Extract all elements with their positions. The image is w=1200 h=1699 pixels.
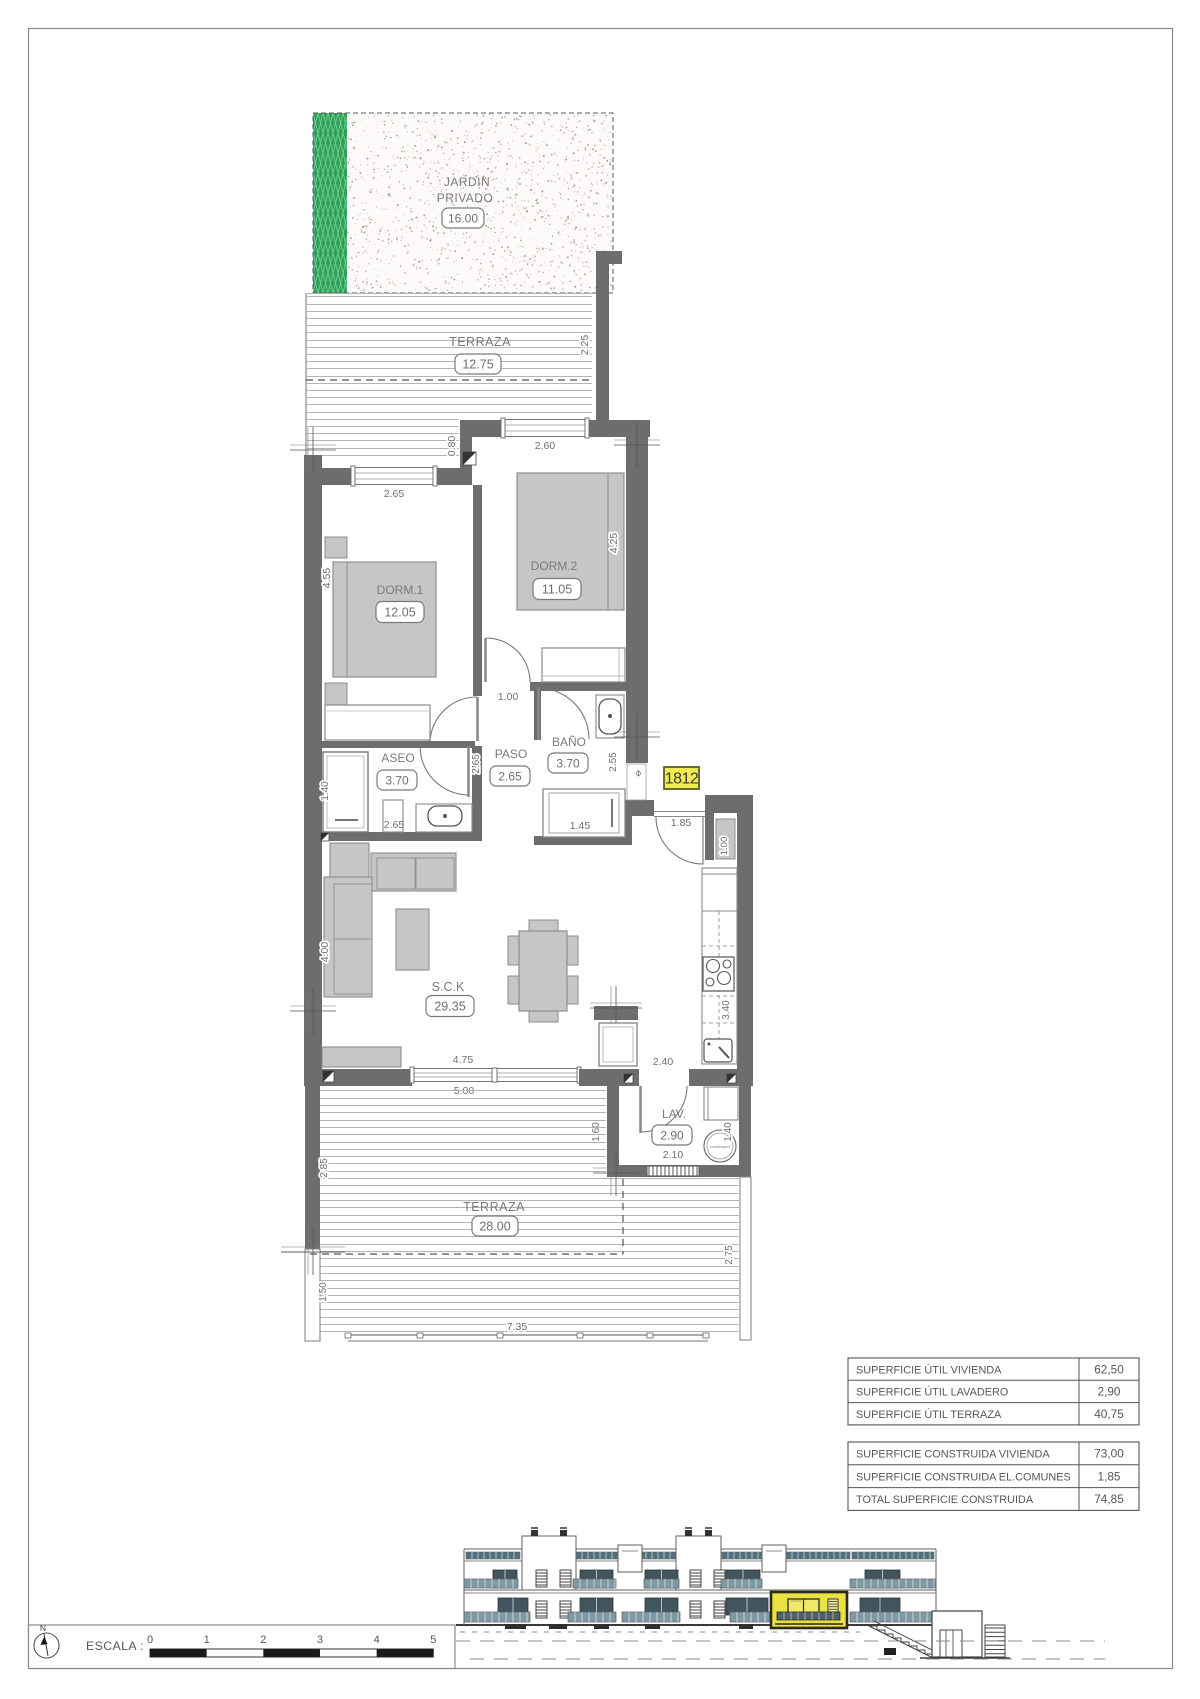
svg-text:TERRAZA: TERRAZA bbox=[449, 335, 511, 349]
svg-text:2.65: 2.65 bbox=[384, 488, 405, 500]
svg-text:2.65: 2.65 bbox=[384, 819, 405, 831]
svg-text:12.75: 12.75 bbox=[462, 358, 493, 372]
svg-text:29.35: 29.35 bbox=[434, 1000, 465, 1014]
svg-text:TOTAL SUPERFICIE CONSTRUIDA: TOTAL SUPERFICIE CONSTRUIDA bbox=[856, 1494, 1034, 1506]
svg-text:4: 4 bbox=[374, 1634, 380, 1646]
svg-text:LAV.: LAV. bbox=[662, 1107, 686, 1121]
svg-text:JARDIN: JARDIN bbox=[444, 175, 490, 189]
svg-text:S.C.K: S.C.K bbox=[432, 980, 465, 994]
svg-text:1.40: 1.40 bbox=[723, 1122, 734, 1142]
svg-text:74,85: 74,85 bbox=[1094, 1492, 1124, 1506]
svg-text:ESCALA :: ESCALA : bbox=[86, 1639, 144, 1653]
svg-text:2.40: 2.40 bbox=[653, 1056, 674, 1068]
svg-text:3.70: 3.70 bbox=[385, 773, 409, 787]
svg-text:73,00: 73,00 bbox=[1094, 1447, 1124, 1461]
svg-text:40,75: 40,75 bbox=[1094, 1407, 1124, 1421]
svg-text:62,50: 62,50 bbox=[1094, 1362, 1124, 1376]
svg-text:2.55: 2.55 bbox=[608, 752, 619, 772]
svg-text:SUPERFICIE CONSTRUIDA EL.COMUN: SUPERFICIE CONSTRUIDA EL.COMUNES bbox=[856, 1471, 1071, 1483]
svg-text:BAÑO: BAÑO bbox=[552, 735, 586, 749]
svg-text:2.65: 2.65 bbox=[471, 754, 482, 774]
svg-text:1.45: 1.45 bbox=[570, 820, 591, 832]
svg-text:SUPERFICIE ÚTIL LAVADERO: SUPERFICIE ÚTIL LAVADERO bbox=[856, 1386, 1008, 1399]
svg-text:3: 3 bbox=[317, 1634, 323, 1646]
svg-text:SUPERFICIE ÚTIL TERRAZA: SUPERFICIE ÚTIL TERRAZA bbox=[856, 1408, 1002, 1421]
svg-text:ASEO: ASEO bbox=[381, 751, 414, 765]
svg-text:4.00: 4.00 bbox=[319, 942, 331, 963]
svg-text:4.55: 4.55 bbox=[321, 568, 333, 589]
svg-text:0.80: 0.80 bbox=[446, 436, 458, 457]
svg-text:2.60: 2.60 bbox=[535, 440, 556, 452]
svg-text:condensador: condensador bbox=[710, 1145, 731, 1149]
svg-text:5: 5 bbox=[430, 1634, 436, 1646]
svg-text:1,85: 1,85 bbox=[1098, 1469, 1121, 1483]
svg-text:2,90: 2,90 bbox=[1098, 1385, 1121, 1399]
svg-text:3.70: 3.70 bbox=[556, 756, 580, 770]
svg-text:0: 0 bbox=[147, 1634, 153, 1646]
svg-text:PRIVADO: PRIVADO bbox=[437, 191, 494, 205]
svg-text:1.00: 1.00 bbox=[498, 691, 519, 703]
svg-text:PASO: PASO bbox=[495, 747, 527, 761]
svg-text:DORM.1: DORM.1 bbox=[377, 583, 424, 597]
svg-text:12.05: 12.05 bbox=[384, 606, 415, 620]
svg-text:2.85: 2.85 bbox=[319, 1158, 330, 1178]
svg-text:1.60: 1.60 bbox=[591, 1122, 602, 1142]
svg-text:4.25: 4.25 bbox=[608, 533, 620, 554]
svg-text:1.40: 1.40 bbox=[320, 781, 331, 801]
svg-text:2: 2 bbox=[260, 1634, 266, 1646]
svg-text:16.00: 16.00 bbox=[448, 211, 478, 225]
svg-text:DORM.2: DORM.2 bbox=[531, 559, 578, 573]
svg-text:N: N bbox=[40, 1623, 46, 1633]
svg-text:1: 1 bbox=[204, 1634, 210, 1646]
svg-text:SUPERFICIE ÚTIL VIVIENDA: SUPERFICIE ÚTIL VIVIENDA bbox=[856, 1363, 1002, 1376]
svg-text:4.75: 4.75 bbox=[453, 1054, 474, 1066]
svg-text:1812: 1812 bbox=[665, 771, 699, 788]
svg-text:1.85: 1.85 bbox=[671, 817, 692, 829]
svg-text:2.65: 2.65 bbox=[498, 769, 522, 783]
svg-text:11.05: 11.05 bbox=[542, 583, 572, 597]
svg-text:2.90: 2.90 bbox=[660, 1128, 684, 1142]
svg-text:2.10: 2.10 bbox=[663, 1149, 684, 1161]
svg-text:SUPERFICIE CONSTRUIDA VIVIENDA: SUPERFICIE CONSTRUIDA VIVIENDA bbox=[856, 1449, 1050, 1461]
svg-text:2.25: 2.25 bbox=[579, 335, 591, 356]
svg-text:1.50: 1.50 bbox=[318, 1282, 329, 1302]
svg-text:3.40: 3.40 bbox=[721, 1000, 732, 1020]
svg-text:2.75: 2.75 bbox=[724, 1245, 735, 1265]
svg-text:28.00: 28.00 bbox=[479, 1220, 510, 1234]
svg-text:TERRAZA: TERRAZA bbox=[463, 1200, 525, 1214]
svg-text:1.00: 1.00 bbox=[719, 837, 730, 856]
svg-text:7.35: 7.35 bbox=[507, 1321, 528, 1333]
